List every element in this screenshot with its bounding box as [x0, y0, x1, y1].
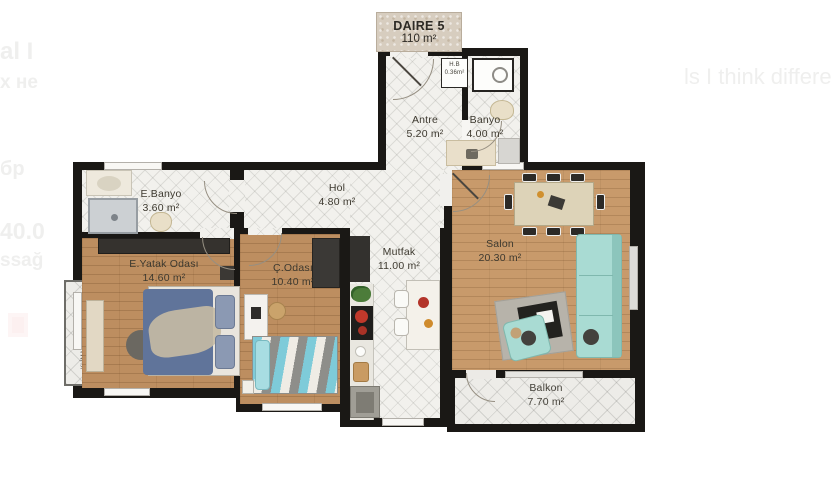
dining-chair	[570, 173, 585, 182]
room-label-hb: H.B 0.36m²	[441, 61, 468, 77]
background-text-fragment: ssağ	[0, 250, 43, 272]
eyatak-vanity	[86, 300, 104, 372]
plan-area: 110 m²	[402, 33, 437, 45]
codasi-desk	[244, 294, 268, 340]
plan-header-box: DAIRE 5 110 m²	[376, 12, 462, 52]
mutfak-table	[406, 280, 440, 350]
background-pink-swatch	[8, 313, 28, 337]
background-text-fragment: х не	[0, 72, 38, 94]
room-label-hol: Hol4.80 m²	[300, 182, 374, 209]
mutfak-chair	[394, 318, 409, 336]
room-label-mutfak: Mutfak11.00 m²	[358, 246, 440, 273]
sofa	[576, 234, 622, 358]
dining-chair	[504, 194, 513, 210]
sofa-pillow	[583, 329, 599, 345]
room-label-codasi: Ç.Odası10.40 m²	[246, 262, 340, 289]
banyo-counter	[498, 138, 520, 164]
stove-pan	[358, 326, 367, 335]
background-text-fragment: 40.0	[0, 218, 45, 245]
dining-chair	[546, 227, 561, 236]
window-ebanyo-top	[104, 162, 162, 170]
room-label-salon: Salon20.30 m²	[448, 238, 552, 265]
shower-drain	[111, 214, 118, 221]
mutfak-sink-unit	[350, 386, 380, 418]
eyatak-pillow	[215, 295, 235, 329]
sofa-cushion-line	[579, 275, 613, 276]
mutfak-plant	[351, 286, 371, 302]
eyatak-pillow	[215, 335, 235, 369]
window-balkon-door	[505, 371, 583, 378]
eyatak-bed	[148, 286, 240, 376]
room-label-ebanyo: E.Banyo3.60 m²	[118, 188, 204, 215]
dining-table	[514, 182, 594, 226]
washing-machine	[472, 58, 514, 92]
codasi-nightstand	[242, 380, 254, 394]
window-mutfak-bottom	[382, 418, 424, 426]
background-text-fragment: бр	[0, 158, 25, 181]
window-salon-right	[629, 246, 638, 310]
mutfak-bowl	[355, 346, 366, 357]
dining-decor-bowl	[537, 191, 544, 198]
dining-decor	[548, 195, 566, 210]
door-gap-salon	[440, 174, 452, 206]
dining-chair	[522, 173, 537, 182]
floor-plan-image: al I х не бр 40.0 ssağ ls I think differ…	[0, 0, 832, 480]
stove-pot	[355, 310, 368, 323]
room-label-eyatak: E.Yatak Odası14.60 m²	[106, 258, 222, 285]
room-label-banyo: Banyo4.00 m²	[448, 114, 522, 141]
background-text-fragment: ls I think differen	[684, 64, 832, 90]
codasi-pillow	[255, 340, 270, 390]
dining-chair	[522, 227, 537, 236]
codasi-bed	[252, 336, 338, 394]
mutfak-bowl-2	[424, 319, 433, 328]
sofa-back	[612, 235, 621, 357]
codasi-laptop	[251, 307, 261, 319]
mutfak-stove	[351, 306, 373, 340]
sofa-cushion-line	[579, 315, 613, 316]
mutfak-plate	[418, 297, 429, 308]
mutfak-cutting-board	[353, 362, 369, 382]
background-text-fragment: al I	[0, 38, 33, 66]
mutfak-sink	[356, 392, 374, 413]
mutfak-chair	[394, 290, 409, 308]
room-label-balkon: Balkon7.70 m²	[500, 382, 592, 409]
plan-title: DAIRE 5	[393, 19, 444, 33]
codasi-chair	[268, 302, 286, 320]
dining-chair	[546, 173, 561, 182]
washing-machine-door	[492, 67, 508, 83]
window-klima	[73, 292, 82, 350]
window-eyatak-bottom	[104, 388, 150, 396]
dining-chair	[596, 194, 605, 210]
window-codasi-bottom	[262, 403, 322, 411]
armchair-pillow	[519, 329, 537, 347]
